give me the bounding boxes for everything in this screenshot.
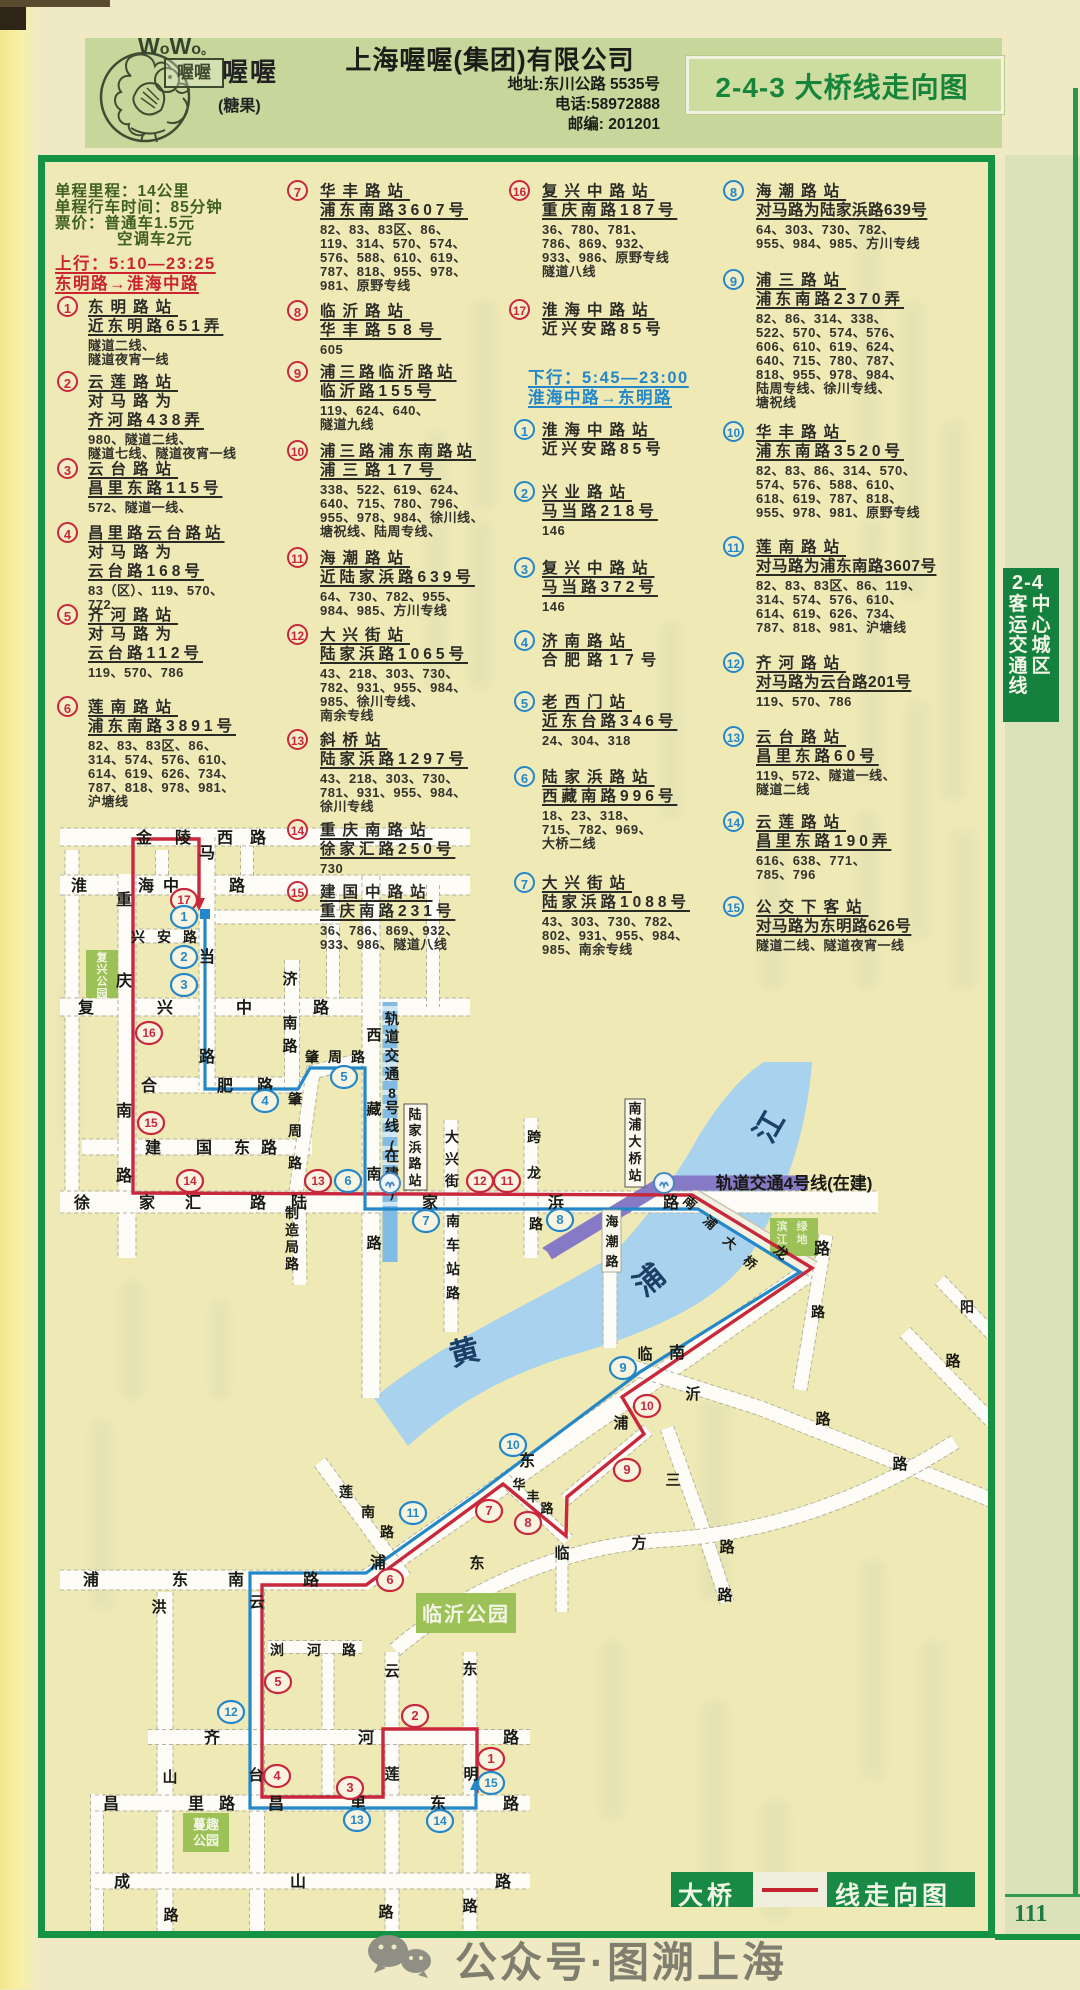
svg-text:建: 建 — [145, 1139, 161, 1157]
svg-text:南: 南 — [361, 1504, 375, 1520]
svg-text:南: 南 — [282, 1014, 297, 1032]
svg-text:藏: 藏 — [366, 1100, 381, 1118]
svg-text:路: 路 — [380, 1524, 395, 1540]
svg-text:大: 大 — [445, 1129, 459, 1145]
svg-text:路: 路 — [408, 1156, 422, 1171]
svg-text:兴: 兴 — [157, 999, 173, 1017]
svg-text:路: 路 — [261, 1138, 278, 1157]
svg-text:公: 公 — [97, 975, 108, 988]
svg-text:园: 园 — [97, 987, 108, 1000]
svg-text:云: 云 — [384, 1663, 399, 1680]
svg-text:徐: 徐 — [73, 1193, 90, 1212]
svg-text:路: 路 — [446, 1285, 461, 1301]
svg-text:路: 路 — [116, 1166, 133, 1185]
svg-text:路: 路 — [892, 1455, 908, 1473]
svg-text:三: 三 — [665, 1472, 680, 1489]
svg-text:齐: 齐 — [204, 1728, 221, 1747]
svg-text:1: 1 — [487, 1751, 494, 1766]
svg-text:浦: 浦 — [83, 1570, 99, 1589]
svg-text:肥: 肥 — [217, 1077, 233, 1095]
svg-text:路: 路 — [229, 876, 246, 895]
svg-text:公园: 公园 — [193, 1833, 219, 1848]
svg-text:路: 路 — [250, 828, 267, 847]
svg-text:周: 周 — [288, 1123, 302, 1139]
svg-text:成: 成 — [114, 1872, 130, 1891]
svg-text:南: 南 — [366, 1165, 381, 1183]
svg-text:路: 路 — [503, 1794, 520, 1813]
svg-text:号: 号 — [385, 1100, 400, 1117]
svg-text:轨: 轨 — [385, 1010, 400, 1028]
svg-text:南: 南 — [446, 1213, 460, 1229]
svg-text:4: 4 — [273, 1768, 281, 1783]
svg-text:14: 14 — [433, 1814, 447, 1828]
svg-text:11: 11 — [407, 1506, 420, 1520]
svg-text:3: 3 — [346, 1780, 353, 1795]
svg-text:15: 15 — [144, 1116, 158, 1130]
svg-text:桥: 桥 — [628, 1151, 642, 1166]
svg-text:阳: 阳 — [960, 1299, 974, 1315]
svg-text:路: 路 — [605, 1254, 619, 1269]
svg-text:临: 临 — [554, 1544, 569, 1562]
svg-text:河: 河 — [307, 1642, 321, 1658]
svg-text:昌: 昌 — [103, 1795, 119, 1813]
svg-text:局: 局 — [285, 1239, 299, 1255]
svg-text:7: 7 — [422, 1213, 429, 1228]
svg-text:济: 济 — [282, 970, 298, 988]
svg-text:南: 南 — [228, 1570, 244, 1589]
svg-text:站: 站 — [408, 1173, 421, 1188]
svg-text:西: 西 — [217, 829, 233, 847]
svg-text:车: 车 — [446, 1237, 460, 1253]
svg-text:东: 东 — [234, 1138, 250, 1157]
svg-text:5: 5 — [274, 1674, 281, 1689]
svg-text:17: 17 — [177, 893, 191, 907]
svg-text:10: 10 — [506, 1438, 520, 1452]
svg-text:陵: 陵 — [175, 829, 192, 847]
svg-text:路: 路 — [717, 1586, 733, 1604]
svg-text:昌: 昌 — [268, 1795, 284, 1813]
svg-text:路: 路 — [815, 1410, 831, 1428]
svg-text:莲: 莲 — [384, 1765, 399, 1783]
svg-text:兴: 兴 — [445, 1151, 459, 1167]
svg-text:复: 复 — [96, 950, 109, 964]
svg-text:路: 路 — [814, 1239, 831, 1258]
svg-text:4: 4 — [261, 1093, 269, 1108]
svg-text:里: 里 — [188, 1795, 204, 1813]
svg-text:10: 10 — [640, 1399, 654, 1413]
svg-text:路: 路 — [313, 998, 330, 1017]
svg-text:2: 2 — [411, 1708, 418, 1723]
svg-text:浦: 浦 — [370, 1553, 386, 1572]
svg-text:河: 河 — [358, 1728, 374, 1747]
svg-text:7: 7 — [485, 1503, 492, 1518]
svg-text:地: 地 — [797, 1232, 808, 1246]
svg-text:12: 12 — [224, 1705, 238, 1719]
svg-text:3: 3 — [180, 977, 187, 992]
svg-text:15: 15 — [484, 1776, 498, 1790]
svg-text:东: 东 — [469, 1554, 484, 1572]
svg-text:路: 路 — [183, 929, 198, 945]
svg-text:台: 台 — [248, 1766, 263, 1784]
svg-text:在: 在 — [385, 1147, 400, 1165]
svg-text:安: 安 — [157, 929, 171, 945]
svg-text:跨: 跨 — [527, 1129, 542, 1145]
svg-text:路: 路 — [529, 1216, 544, 1232]
svg-text:龙: 龙 — [526, 1165, 541, 1181]
svg-text:12: 12 — [473, 1174, 487, 1188]
svg-text:5: 5 — [340, 1069, 347, 1084]
svg-text:6: 6 — [386, 1572, 393, 1587]
svg-text:汇: 汇 — [185, 1194, 201, 1212]
svg-text:海: 海 — [138, 876, 154, 895]
svg-text:路: 路 — [540, 1501, 554, 1516]
svg-text:路: 路 — [366, 1234, 382, 1252]
svg-text:造: 造 — [285, 1222, 299, 1238]
svg-text:浦: 浦 — [628, 1117, 641, 1132]
svg-text:路: 路 — [811, 1304, 826, 1320]
svg-text:家: 家 — [139, 1193, 156, 1212]
svg-text:方: 方 — [631, 1534, 646, 1552]
svg-text:周: 周 — [328, 1049, 342, 1065]
svg-text:明: 明 — [463, 1766, 478, 1783]
svg-text:浏: 浏 — [270, 1642, 284, 1658]
svg-text:8: 8 — [388, 1085, 396, 1101]
svg-text:莲: 莲 — [339, 1484, 353, 1500]
svg-text:华: 华 — [512, 1477, 525, 1492]
svg-text:肇: 肇 — [288, 1091, 303, 1107]
svg-text:东: 东 — [172, 1570, 188, 1589]
svg-text:路: 路 — [495, 1872, 512, 1891]
svg-text:复: 复 — [77, 998, 95, 1017]
svg-text:临沂公园: 临沂公园 — [422, 1602, 510, 1626]
svg-text:8: 8 — [556, 1212, 563, 1227]
svg-text:路: 路 — [303, 1570, 320, 1589]
svg-text:9: 9 — [623, 1462, 630, 1477]
svg-text:街: 街 — [444, 1173, 459, 1189]
svg-text:路: 路 — [288, 1155, 303, 1171]
svg-text:8: 8 — [524, 1515, 531, 1530]
svg-text:交: 交 — [385, 1047, 400, 1065]
svg-text:路: 路 — [462, 1897, 478, 1915]
svg-text:路: 路 — [250, 1193, 267, 1212]
svg-text:16: 16 — [142, 1026, 156, 1040]
svg-text:路: 路 — [282, 1037, 298, 1055]
svg-text:云: 云 — [249, 1594, 264, 1611]
svg-text:路: 路 — [285, 1256, 300, 1272]
svg-text:线: 线 — [385, 1117, 400, 1135]
svg-text:马: 马 — [199, 844, 215, 862]
svg-text:路: 路 — [663, 1193, 680, 1212]
svg-text:通: 通 — [385, 1066, 400, 1083]
svg-text:路: 路 — [719, 1538, 735, 1556]
svg-text:路: 路 — [219, 1794, 236, 1813]
svg-text:路: 路 — [378, 1903, 394, 1921]
svg-text:潮: 潮 — [605, 1234, 618, 1249]
svg-text:路: 路 — [163, 1906, 179, 1924]
svg-text:绿: 绿 — [797, 1219, 809, 1233]
svg-text:滨: 滨 — [777, 1219, 788, 1233]
svg-text:站: 站 — [446, 1261, 460, 1277]
svg-text:洪: 洪 — [151, 1599, 166, 1616]
svg-text:合: 合 — [141, 1076, 158, 1095]
svg-text:海: 海 — [605, 1214, 618, 1229]
svg-text:南: 南 — [628, 1101, 641, 1116]
svg-text:肇: 肇 — [305, 1049, 320, 1065]
svg-text:重: 重 — [116, 890, 132, 909]
svg-text:路: 路 — [342, 1642, 357, 1658]
svg-text:金: 金 — [135, 828, 153, 847]
svg-text:南: 南 — [669, 1343, 685, 1362]
svg-text:当: 当 — [199, 947, 215, 966]
svg-text:临: 临 — [637, 1345, 652, 1363]
svg-text:丰: 丰 — [526, 1489, 539, 1504]
svg-text:陆: 陆 — [408, 1107, 421, 1122]
svg-text:制: 制 — [285, 1205, 299, 1221]
svg-text:路: 路 — [945, 1352, 961, 1370]
svg-text:沂: 沂 — [685, 1385, 700, 1403]
svg-text:1: 1 — [180, 909, 187, 924]
svg-text:浦: 浦 — [613, 1414, 628, 1432]
svg-text:路: 路 — [351, 1049, 366, 1065]
svg-text:中: 中 — [236, 998, 252, 1017]
svg-text:路: 路 — [503, 1728, 520, 1747]
svg-text:路: 路 — [199, 1047, 216, 1066]
svg-text:南: 南 — [116, 1101, 132, 1120]
svg-text:浜: 浜 — [408, 1140, 421, 1155]
svg-text:庆: 庆 — [115, 971, 132, 990]
svg-text:道: 道 — [385, 1028, 400, 1046]
svg-text:6: 6 — [344, 1173, 351, 1188]
svg-text:蔓趣: 蔓趣 — [193, 1817, 220, 1832]
svg-text:西: 西 — [366, 1027, 381, 1044]
svg-text:国: 国 — [196, 1139, 212, 1157]
svg-text:13: 13 — [311, 1174, 325, 1188]
svg-text:11: 11 — [501, 1174, 514, 1188]
svg-text:9: 9 — [619, 1360, 626, 1375]
svg-text:山: 山 — [162, 1769, 177, 1786]
svg-text:站: 站 — [628, 1168, 641, 1183]
svg-text:轨道交通4号线(在建): 轨道交通4号线(在建) — [716, 1173, 873, 1193]
svg-text:家: 家 — [408, 1123, 422, 1138]
svg-text:大: 大 — [628, 1134, 641, 1149]
svg-text:13: 13 — [350, 1813, 364, 1827]
svg-text:2: 2 — [180, 949, 187, 964]
svg-text:兴: 兴 — [131, 929, 145, 945]
svg-text:淮: 淮 — [71, 876, 87, 895]
svg-text:14: 14 — [183, 1174, 197, 1188]
svg-text:兴: 兴 — [97, 962, 108, 976]
svg-text:山: 山 — [290, 1873, 306, 1891]
svg-text:东: 东 — [462, 1660, 477, 1678]
